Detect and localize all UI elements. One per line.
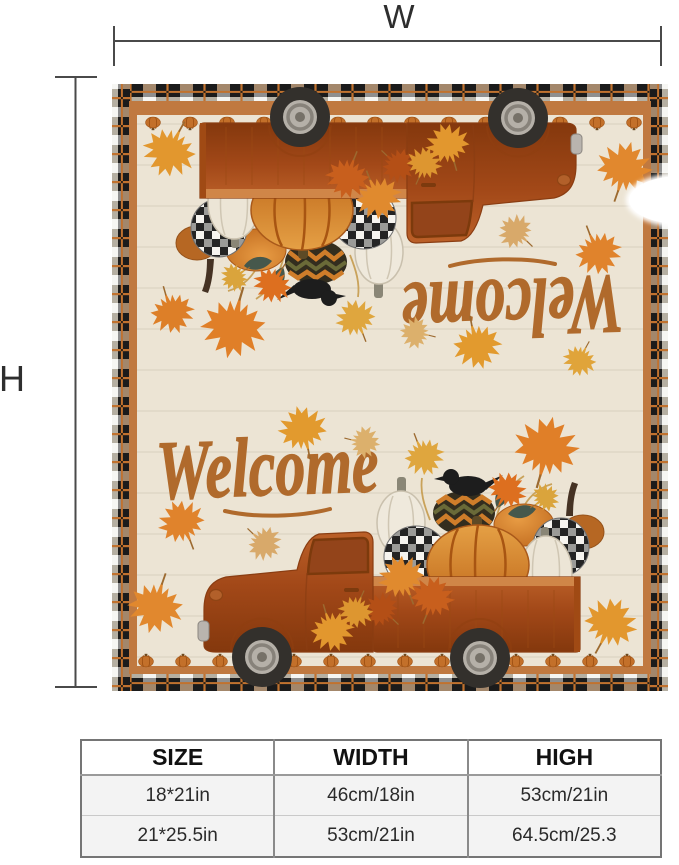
svg-text:Welcome: Welcome xyxy=(155,417,380,518)
svg-text:H: H xyxy=(0,358,25,399)
svg-text:W: W xyxy=(383,0,415,35)
